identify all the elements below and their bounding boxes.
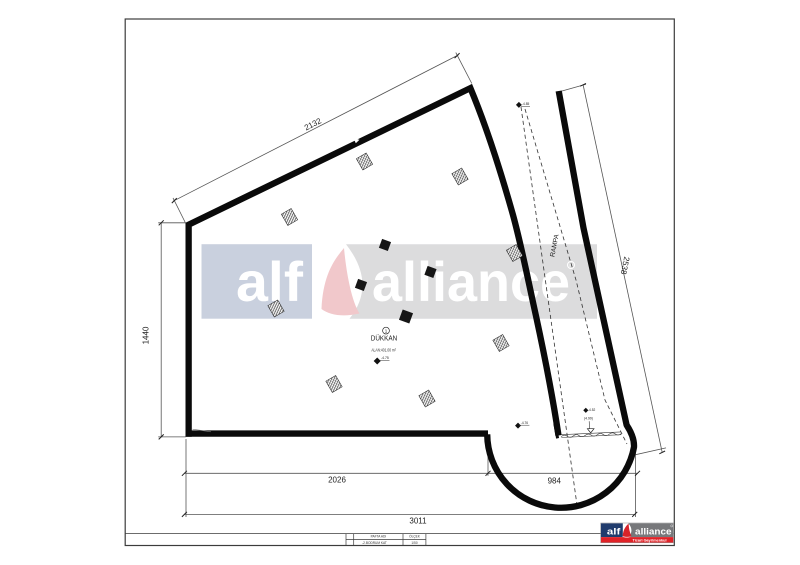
svg-text:-4.85: -4.85	[522, 102, 529, 106]
svg-text:Ticari Gayrimenkul: Ticari Gayrimenkul	[633, 538, 667, 542]
svg-text:PAFTA ADI: PAFTA ADI	[371, 535, 387, 539]
svg-text:-4.76: -4.76	[521, 421, 528, 425]
svg-text:alf: alf	[236, 250, 303, 313]
svg-text:-2.BODRUM KAT: -2.BODRUM KAT	[362, 541, 387, 545]
svg-text:alliance: alliance	[635, 526, 672, 537]
svg-text:DÜKKAN: DÜKKAN	[371, 333, 398, 342]
svg-text:1440: 1440	[142, 326, 151, 344]
svg-text:984: 984	[548, 477, 562, 486]
svg-text:-4.52: -4.52	[588, 408, 595, 412]
svg-text:ÖLÇEK: ÖLÇEK	[409, 535, 421, 539]
svg-text:3011: 3011	[409, 517, 427, 526]
svg-text:alliance: alliance	[372, 250, 570, 313]
svg-text:(4.99): (4.99)	[584, 417, 593, 421]
svg-text:alf: alf	[607, 526, 622, 537]
svg-text:2026: 2026	[328, 476, 346, 485]
svg-text:1/50: 1/50	[411, 541, 417, 545]
svg-text:ALAN:401.00 m²: ALAN:401.00 m²	[371, 347, 396, 352]
svg-text:-4.75: -4.75	[381, 356, 389, 360]
